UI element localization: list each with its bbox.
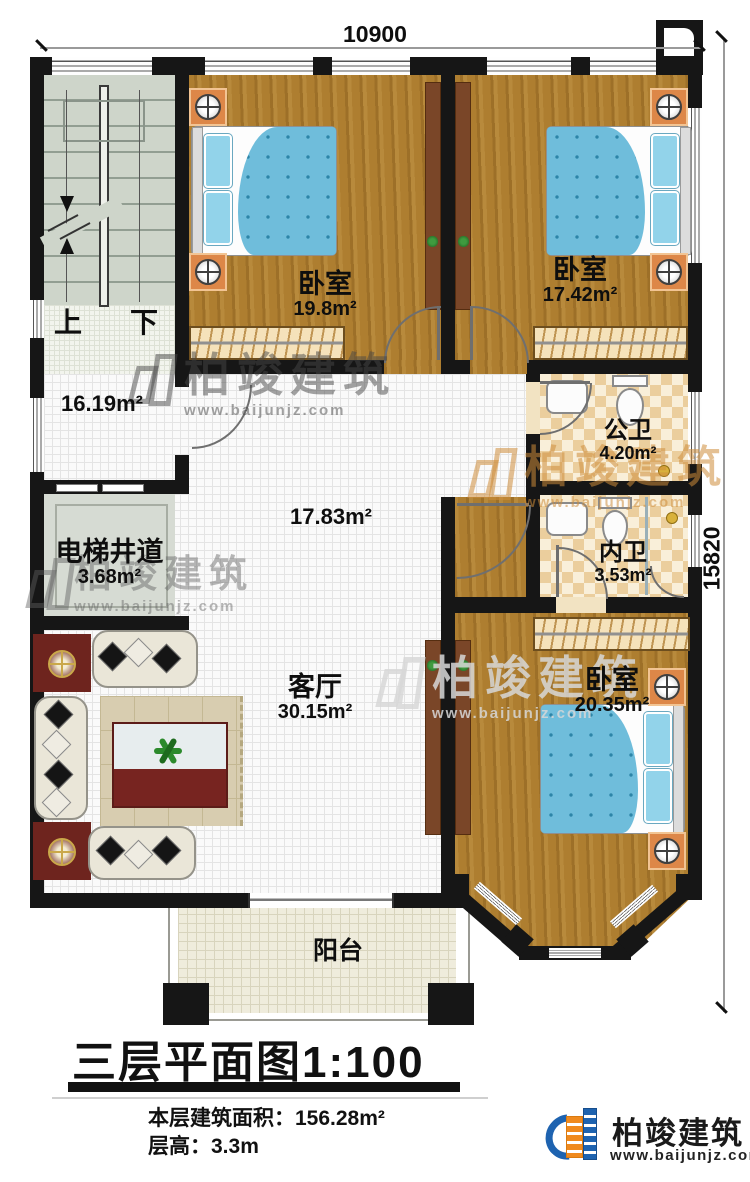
stairs-down-label: 下: [126, 308, 162, 338]
right-dimension-label: 15820: [700, 530, 725, 590]
corridor-bedroom3-wall: [441, 497, 455, 613]
sink: [546, 502, 588, 536]
elevator-door-mark: [56, 484, 98, 492]
top-dimension-label: 10900: [320, 22, 430, 47]
nightstand: [650, 88, 688, 126]
bay-window-bottom: [549, 948, 601, 958]
room-area: 17.42m²: [505, 285, 655, 307]
lamp-icon: [195, 94, 221, 120]
public-bath-label: 公卫 4.20m²: [583, 418, 673, 463]
nightstand: [189, 253, 227, 291]
bed: [540, 704, 685, 834]
dim-tick: [715, 1001, 728, 1014]
bath-middle-wall: [526, 481, 702, 495]
room-name: 卧室: [250, 270, 400, 299]
corner-mat: [33, 822, 91, 880]
room-name: 客厅: [250, 673, 380, 702]
bed: [191, 126, 337, 256]
title-underline: [68, 1082, 460, 1092]
corner-mat: [33, 634, 91, 692]
room-name: 卧室: [505, 256, 655, 285]
balcony-post: [428, 983, 474, 1025]
stair-arrow-down: [60, 196, 74, 212]
bay-post: [676, 874, 702, 900]
room-area: 3.68m²: [37, 567, 182, 589]
blanket: [547, 127, 645, 255]
living-label: 客厅 30.15m²: [250, 673, 380, 724]
window: [688, 392, 702, 464]
room-area: 3.53m²: [578, 566, 668, 585]
plant-icon: [458, 236, 469, 247]
bedroom3-label: 卧室 20.35m²: [537, 666, 687, 717]
lamp-icon: [656, 94, 682, 120]
nightstand: [189, 88, 227, 126]
bedroom2-label: 卧室 17.42m²: [505, 256, 655, 307]
room-area: 20.35m²: [537, 695, 687, 717]
stair-arrow-up: [60, 238, 74, 254]
room-name: 卧室: [537, 666, 687, 695]
balcony-slider-opening: [248, 893, 394, 908]
brand-url: www.baijunjz.com: [610, 1147, 750, 1164]
window: [30, 398, 44, 472]
title-scale: 1:100: [302, 1038, 425, 1087]
room-name: 电梯井道: [37, 538, 182, 567]
room-area: 30.15m²: [250, 702, 380, 724]
plant-icon: [458, 660, 469, 671]
lamp-icon: [656, 259, 682, 285]
room-name: 内卫: [578, 540, 668, 566]
room-area: 19.8m²: [250, 299, 400, 321]
pillow: [644, 712, 672, 766]
stair-top-rail-outline: [63, 100, 145, 142]
shower-head: [658, 465, 670, 477]
hall-area-label: 16.19m²: [52, 392, 152, 416]
public-bath-door-opening: [526, 382, 540, 434]
lamp-icon: [654, 838, 680, 864]
shower-head: [666, 512, 678, 524]
balcony-post: [163, 983, 209, 1025]
headboard: [680, 127, 691, 255]
window: [205, 57, 313, 75]
tv-cabinet: [425, 82, 441, 310]
window: [52, 57, 152, 75]
pillow: [644, 769, 672, 823]
brand-logo-building-blue: [583, 1108, 597, 1160]
brand-logo-icon: [546, 1106, 604, 1168]
elevator-label: 电梯井道 3.68m²: [37, 538, 182, 589]
inner-bath-door-opening: [556, 597, 606, 613]
floor-area-line: 本层建筑面积：156.28m²: [148, 1102, 385, 1132]
wardrobe: [533, 326, 688, 360]
toilet-tank: [598, 497, 632, 509]
bed: [546, 126, 692, 256]
floor-area-label: 本层建筑面积：: [148, 1107, 295, 1130]
inner-bath-label: 内卫 3.53m²: [578, 540, 668, 585]
plant-icon: [427, 236, 438, 247]
wardrobe: [533, 617, 690, 651]
dim-tick: [35, 39, 48, 52]
bedroom-divider-wall: [441, 57, 455, 374]
pillow: [651, 191, 679, 245]
room-name: 公卫: [583, 418, 673, 444]
corridor-area-label: 17.83m²: [276, 505, 386, 529]
floor-height-line: 层高：3.3m: [148, 1130, 259, 1160]
pillow: [204, 191, 232, 245]
blanket: [238, 127, 336, 255]
living-bedroom3-wall: [441, 613, 455, 893]
bedroom1-label: 卧室 19.8m²: [250, 270, 400, 321]
plant-icon: [427, 660, 438, 671]
bay-post: [443, 874, 469, 900]
title-rule: [52, 1097, 488, 1099]
stairs-up-label: 上: [50, 308, 86, 338]
window: [487, 57, 571, 75]
lamp-icon: [48, 838, 76, 866]
stair-right-wall: [175, 57, 189, 387]
stair-flight-centerline: [139, 90, 140, 302]
balcony-label: 阳台: [298, 938, 378, 965]
drawing-title: 三层平面图1:100: [72, 1026, 425, 1090]
nightstand: [650, 253, 688, 291]
room-area: 4.20m²: [583, 444, 673, 463]
elevator-bottom-wall: [30, 616, 189, 630]
floor-area-value: 156.28m²: [295, 1107, 385, 1130]
headboard: [673, 705, 684, 833]
window: [30, 300, 44, 338]
lamp-icon: [195, 259, 221, 285]
living-bottom-wall: [30, 893, 463, 908]
nightstand: [648, 832, 686, 870]
roof-flue-opening: [664, 28, 694, 56]
top-dimension-line: [40, 47, 702, 49]
blanket: [541, 705, 638, 833]
floor-plan-canvas: 10900 15820: [0, 0, 750, 1182]
lamp-icon: [48, 650, 76, 678]
pillow: [204, 134, 232, 188]
tv-cabinet: [455, 82, 471, 310]
elevator-door-mark: [102, 484, 144, 492]
pillow: [651, 134, 679, 188]
wardrobe: [189, 326, 345, 360]
toilet-tank: [612, 375, 648, 387]
coffee-table: [112, 722, 228, 808]
window: [332, 57, 410, 75]
dim-tick: [715, 30, 728, 43]
brand-logo-building-orange: [566, 1116, 583, 1158]
title-name: 三层平面图: [72, 1038, 302, 1087]
headboard: [192, 127, 203, 255]
floor-height-label: 层高：: [148, 1135, 211, 1158]
floor-height-value: 3.3m: [211, 1135, 259, 1158]
